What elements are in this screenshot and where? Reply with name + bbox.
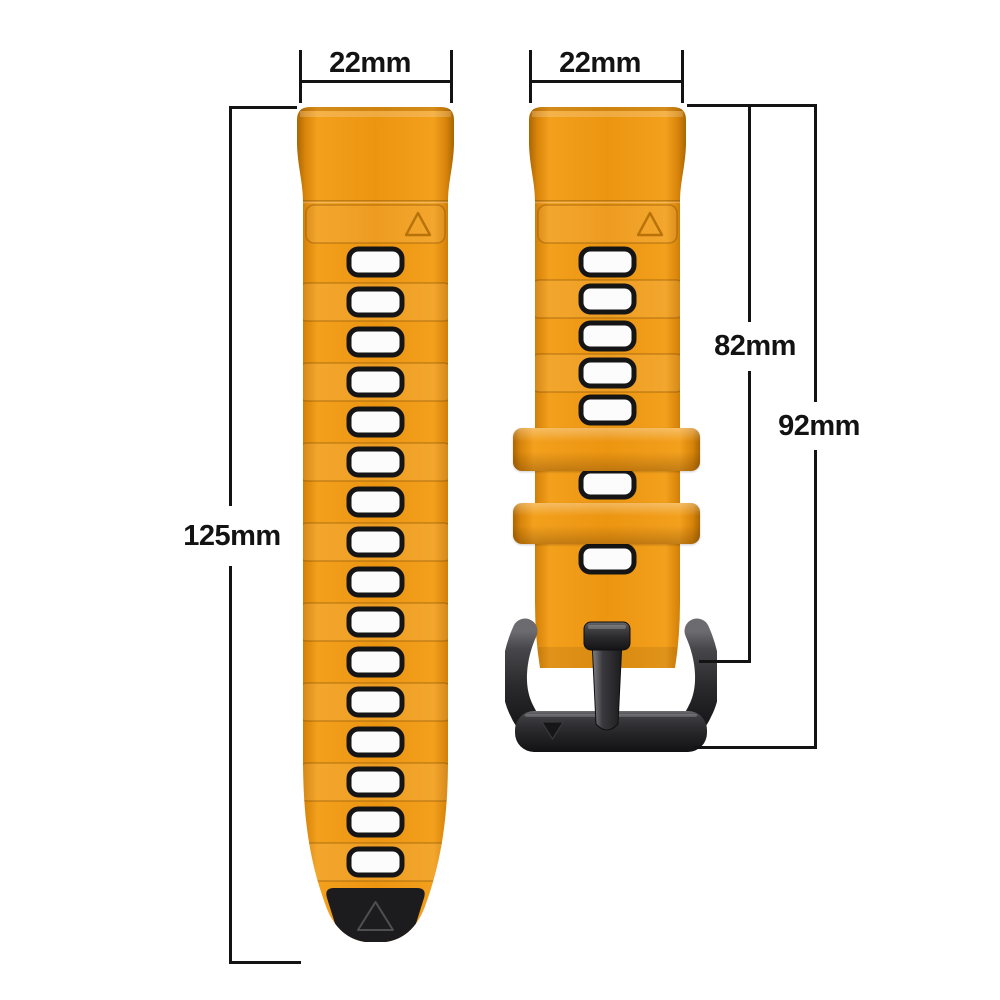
strap-hole: [349, 649, 402, 675]
left-tip-inlay: [326, 888, 424, 942]
dim-line-92-lower: [814, 450, 817, 748]
strap-hole: [349, 449, 402, 475]
strap-hole: [581, 546, 634, 572]
left-strap-top-shade: [297, 107, 454, 111]
strap-hole: [349, 409, 402, 435]
dim-line-right-top: [687, 104, 817, 107]
strap-hole: [581, 397, 634, 423]
strap-hole: [349, 809, 402, 835]
right-strap: [529, 107, 686, 668]
strap-hole: [349, 529, 402, 555]
dim-label-82: 82mm: [655, 331, 855, 361]
right-lug-divider: [535, 200, 680, 202]
dim-line-right-width: [529, 80, 684, 83]
product-dimension-diagram: 22mm 22mm 125mm 82mm 92mm: [0, 0, 1000, 1000]
dim-line-125-bottom: [229, 961, 301, 964]
strap-hole: [349, 569, 402, 595]
buckle-prong-highlight: [588, 625, 626, 629]
dim-label-left-width: 22mm: [270, 48, 470, 78]
buckle-prong: [592, 640, 622, 730]
left-lug-divider-highlight: [303, 202, 448, 204]
left-strap-top-highlight: [300, 111, 451, 117]
strap-hole: [349, 729, 402, 755]
strap-hole: [349, 489, 402, 515]
dim-line-92-upper: [814, 104, 817, 402]
strap-hole: [349, 329, 402, 355]
dim-line-82-bottom: [699, 660, 751, 663]
strap-hole: [349, 849, 402, 875]
dim-label-left-length: 125mm: [132, 521, 332, 551]
strap-hole: [581, 249, 634, 275]
left-lug-divider: [303, 200, 448, 202]
strap-hole: [349, 769, 402, 795]
dim-line-125-upper: [229, 106, 232, 506]
right-lug-divider-highlight: [535, 202, 680, 204]
dim-line-125-lower: [229, 566, 232, 964]
strap-hole: [581, 286, 634, 312]
dim-label-right-width: 22mm: [500, 48, 700, 78]
buckle: [505, 618, 717, 760]
strap-hole: [581, 360, 634, 386]
strap-hole: [581, 323, 634, 349]
strap-hole: [349, 249, 402, 275]
strap-hole: [349, 689, 402, 715]
strap-keeper-2: [513, 503, 700, 544]
dim-label-92: 92mm: [719, 411, 919, 441]
right-strap-top-highlight: [532, 111, 683, 117]
dim-line-125-top: [229, 106, 297, 109]
right-strap-top-shade: [529, 107, 686, 111]
strap-hole: [349, 609, 402, 635]
strap-hole: [581, 471, 634, 497]
dim-line-82-upper: [748, 104, 751, 322]
strap-keeper-1: [513, 428, 700, 471]
dim-line-92-bottom: [694, 746, 817, 749]
dim-line-left-width: [299, 80, 453, 83]
strap-hole: [349, 289, 402, 315]
strap-hole: [349, 369, 402, 395]
